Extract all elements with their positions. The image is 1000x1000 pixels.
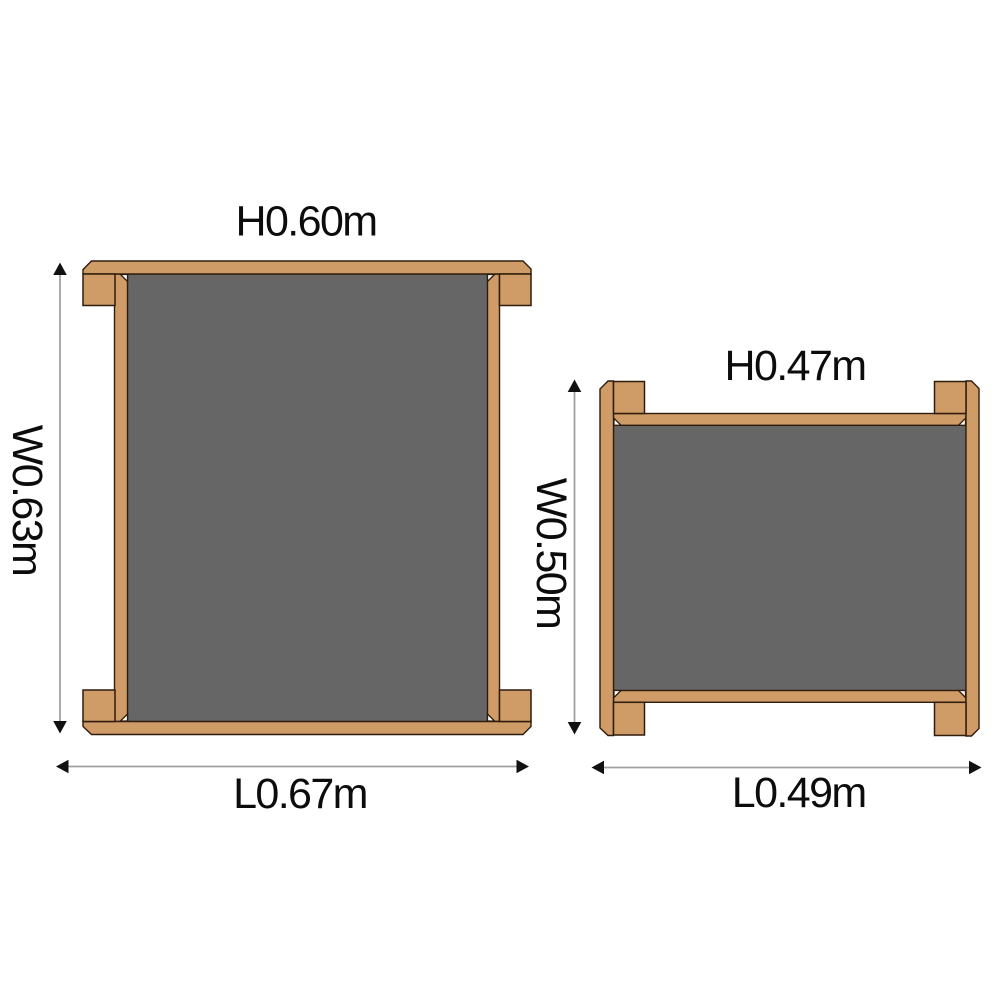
svg-text:L0.67m: L0.67m: [233, 770, 367, 818]
svg-text:H0.47m: H0.47m: [725, 342, 866, 390]
svg-text:H0.60m: H0.60m: [236, 198, 377, 246]
svg-text:W0.50m: W0.50m: [527, 478, 575, 629]
svg-text:W0.63m: W0.63m: [3, 425, 51, 576]
svg-text:L0.49m: L0.49m: [732, 769, 866, 817]
